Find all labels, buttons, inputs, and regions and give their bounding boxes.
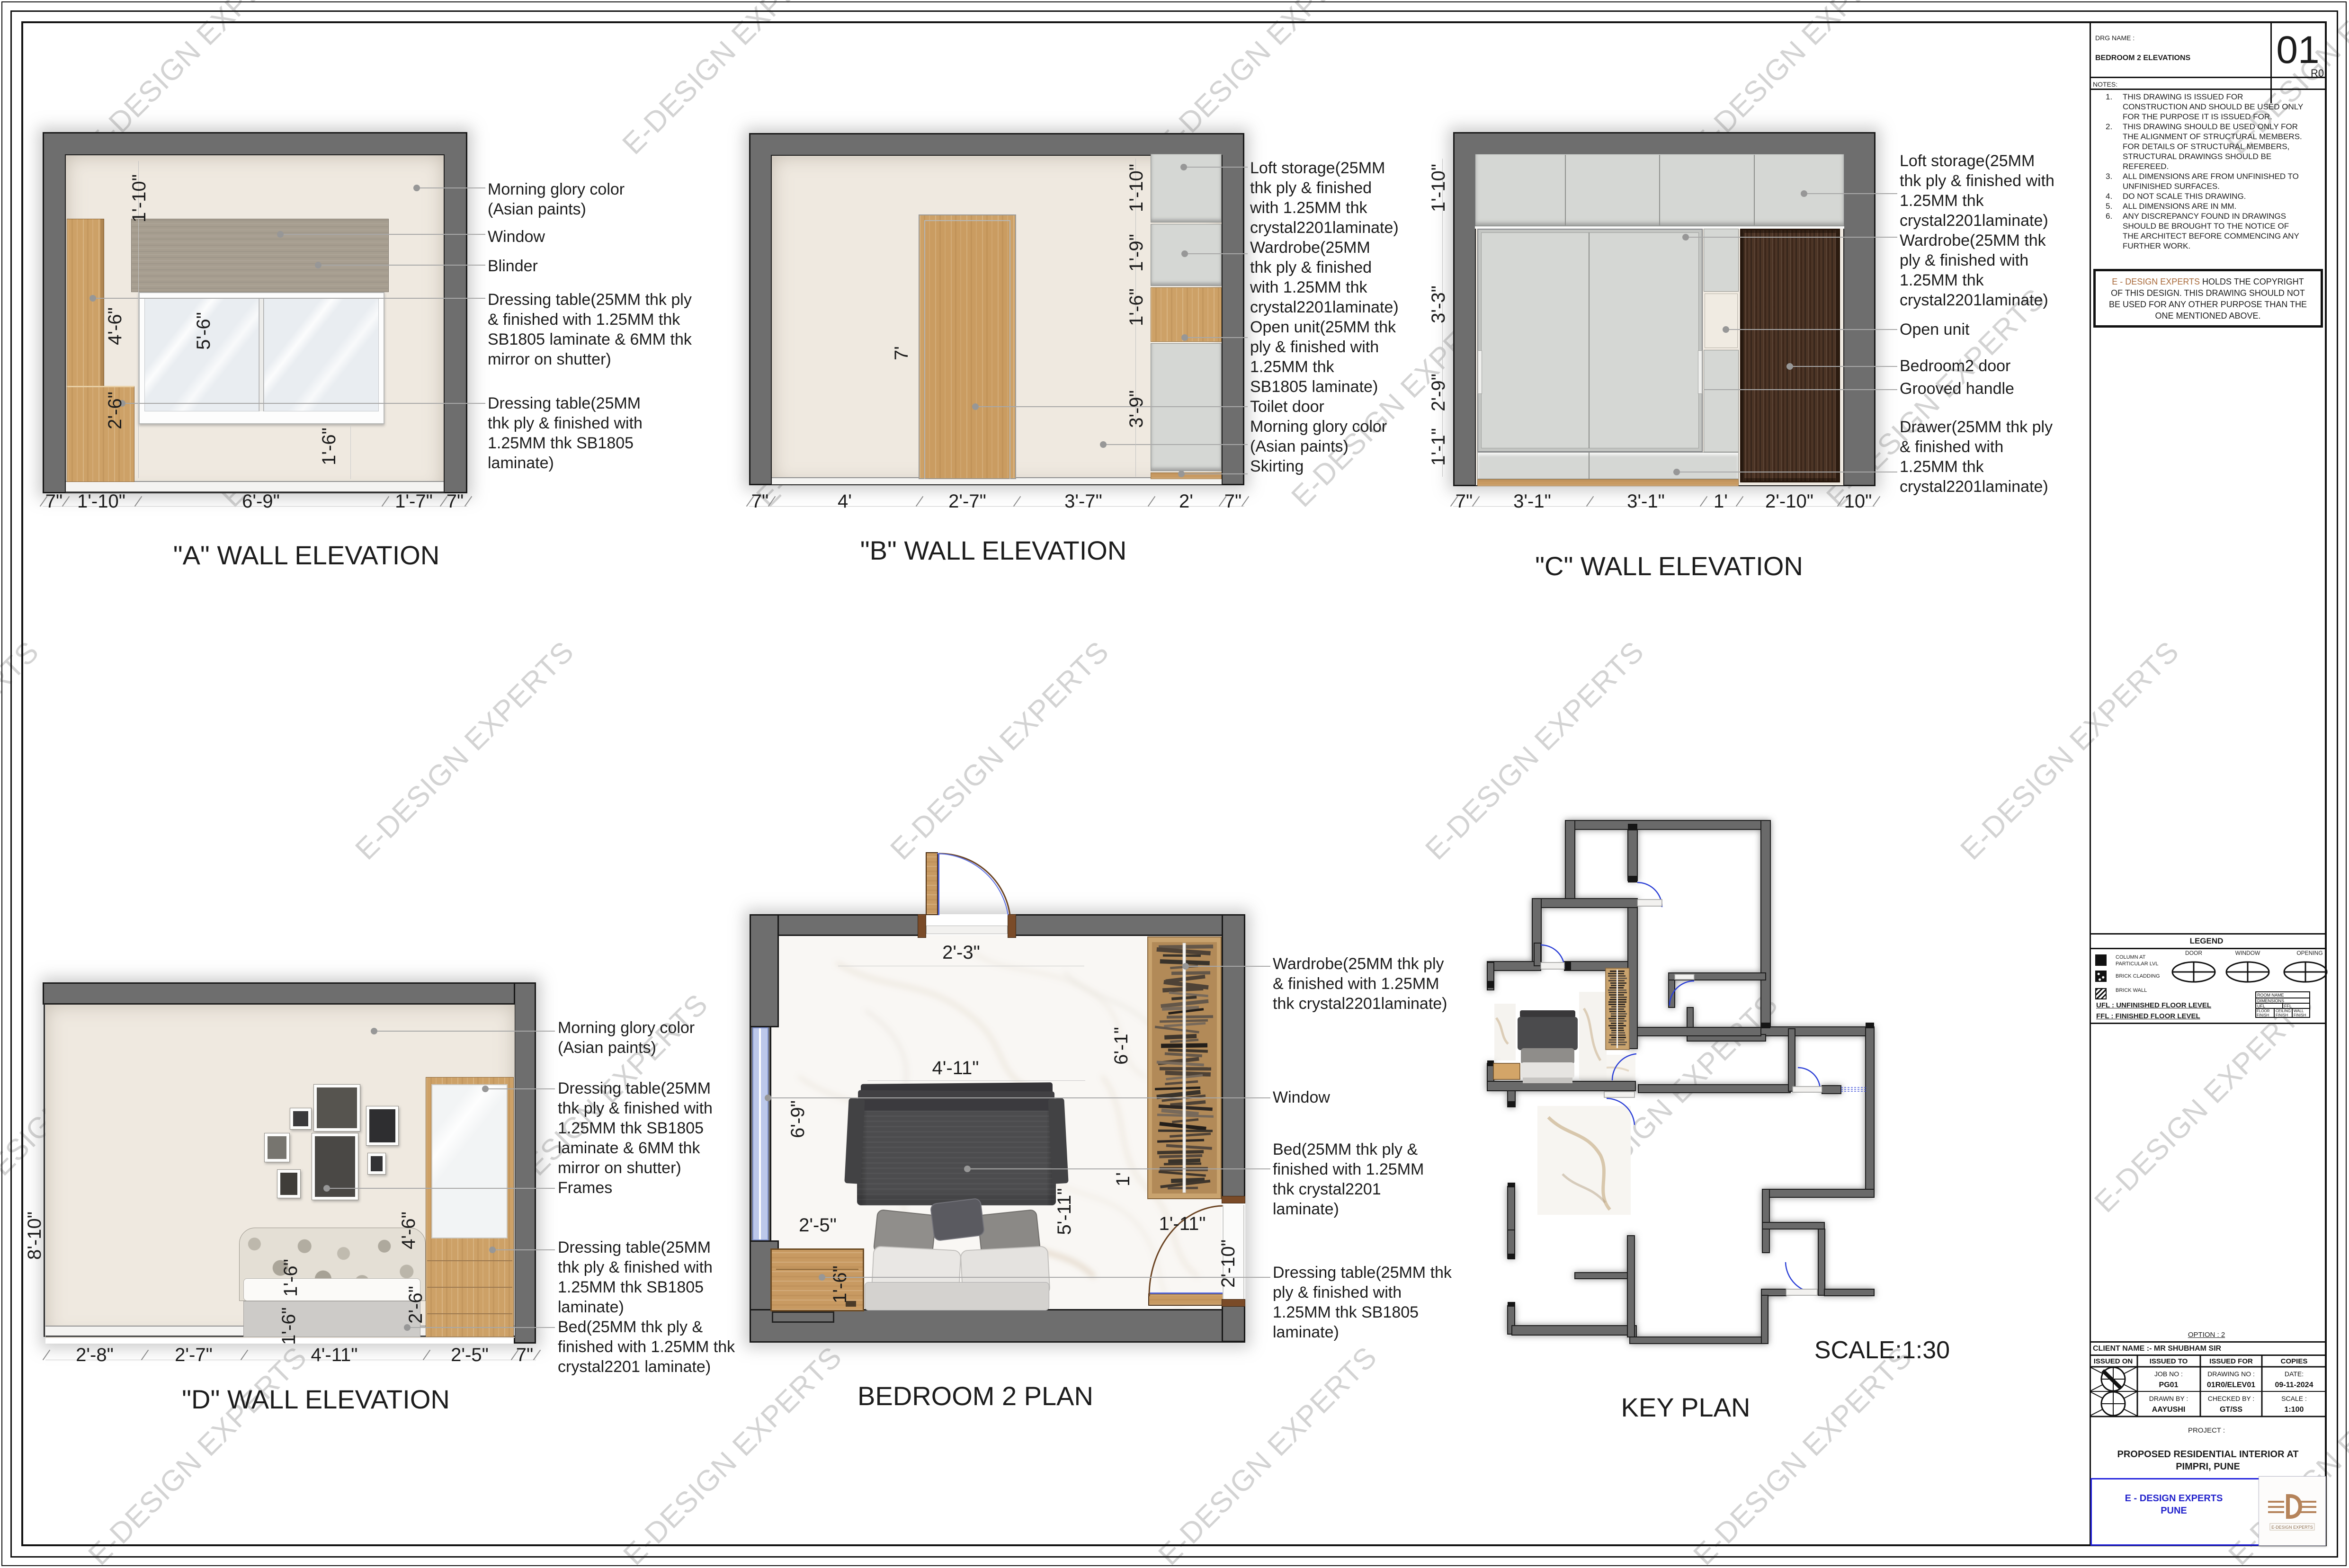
svg-text:E-DESIGN EXPERTS: E-DESIGN EXPERTS	[2271, 1525, 2313, 1530]
svg-text:SCALE :: SCALE :	[2281, 1395, 2307, 1402]
svg-text:JOB NO :: JOB NO :	[2154, 1370, 2183, 1378]
svg-text:09-11-2024: 09-11-2024	[2275, 1381, 2313, 1389]
svg-text:COPIES: COPIES	[2281, 1357, 2308, 1365]
svg-text:CHECKED BY :: CHECKED BY :	[2208, 1395, 2255, 1402]
svg-text:GT/SS: GT/SS	[2220, 1406, 2242, 1414]
svg-text:AAYUSHI: AAYUSHI	[2152, 1406, 2186, 1414]
svg-text:PG01: PG01	[2159, 1381, 2179, 1389]
svg-text:ISSUED FOR: ISSUED FOR	[2209, 1357, 2253, 1365]
svg-text:DATE:: DATE:	[2285, 1370, 2304, 1378]
svg-text:01R0/ELEV01: 01R0/ELEV01	[2207, 1381, 2255, 1389]
svg-text:1:100: 1:100	[2285, 1406, 2304, 1414]
svg-text:DRAWING NO :: DRAWING NO :	[2207, 1370, 2255, 1378]
svg-text:ROOM NAME: ROOM NAME	[2257, 993, 2284, 998]
svg-text:DRAWN BY :: DRAWN BY :	[2149, 1395, 2188, 1402]
svg-text:ISSUED TO: ISSUED TO	[2150, 1357, 2188, 1365]
svg-text:ISSUED ON: ISSUED ON	[2094, 1357, 2133, 1365]
